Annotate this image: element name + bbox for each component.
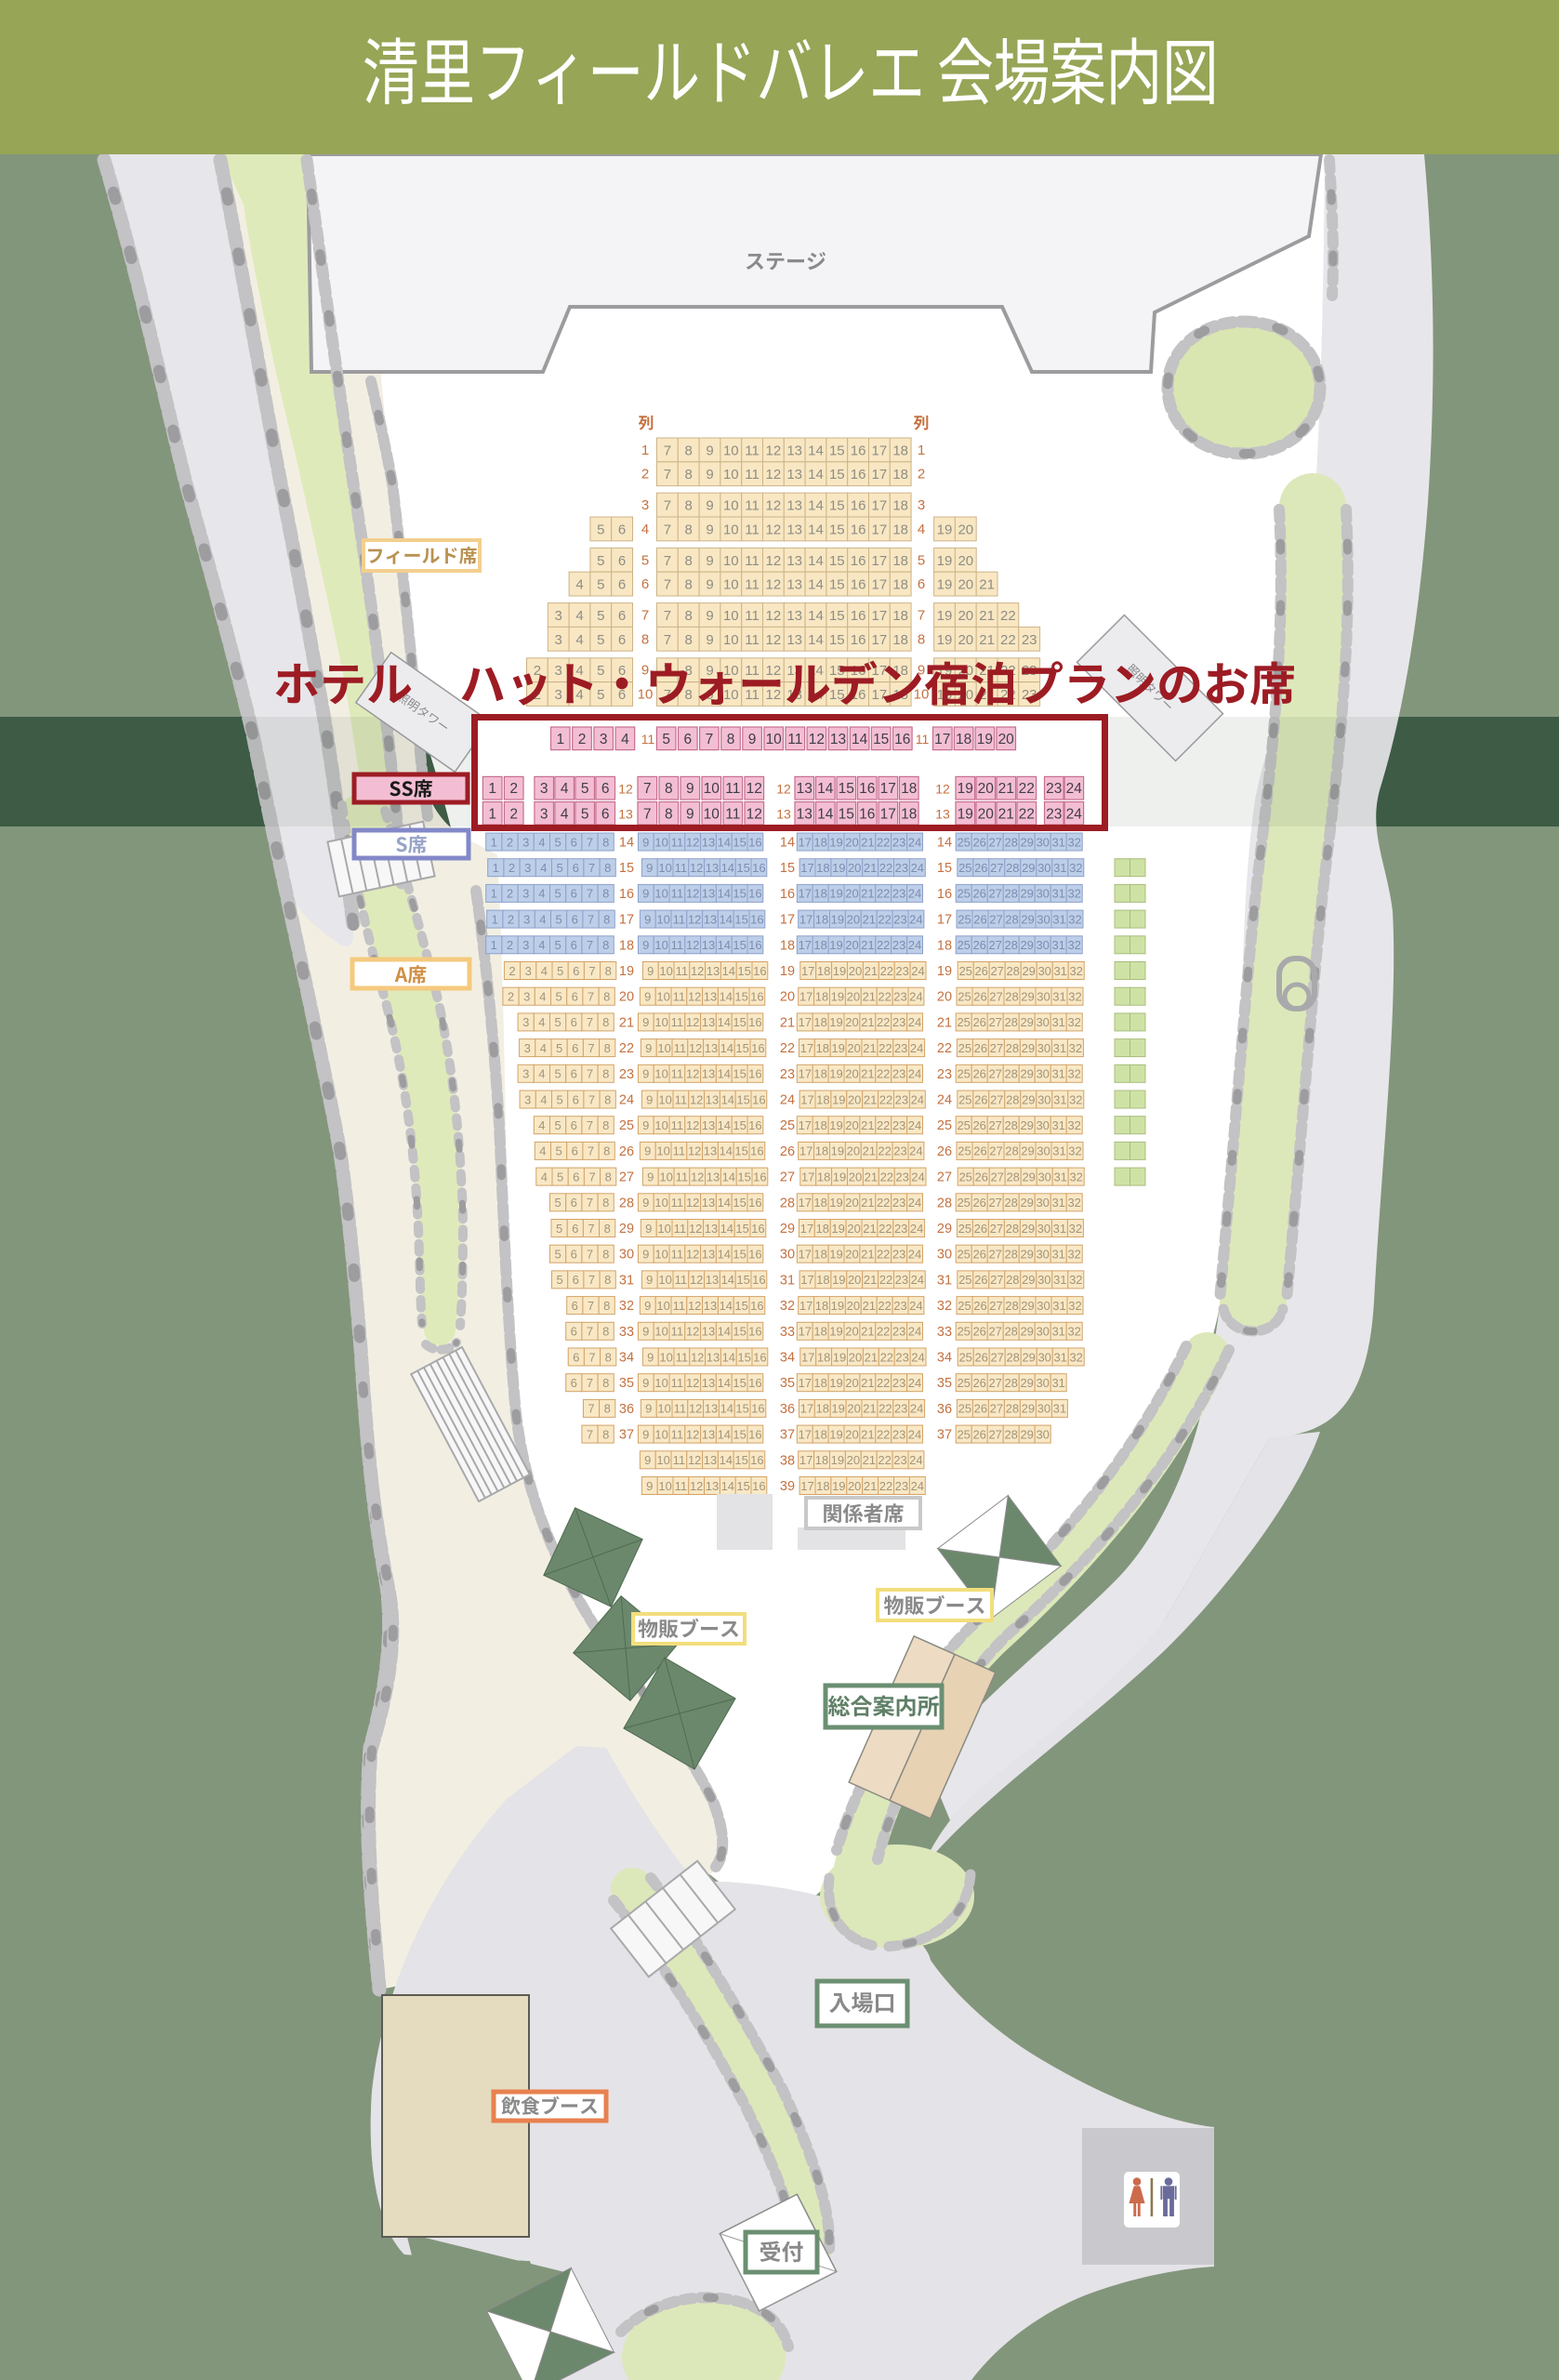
svg-text:26: 26 [974, 1092, 987, 1106]
svg-text:31: 31 [1053, 1041, 1066, 1055]
svg-text:29: 29 [1021, 990, 1034, 1004]
svg-text:27: 27 [988, 887, 1001, 901]
svg-text:23: 23 [895, 1092, 908, 1106]
svg-text:16: 16 [750, 1299, 763, 1313]
svg-text:20: 20 [847, 990, 860, 1004]
svg-text:18: 18 [619, 938, 634, 953]
svg-text:7: 7 [587, 1067, 593, 1081]
svg-text:28: 28 [1006, 964, 1019, 978]
svg-text:25: 25 [958, 1350, 971, 1364]
svg-text:29: 29 [1022, 1170, 1035, 1183]
svg-text:12: 12 [690, 861, 703, 875]
svg-text:23: 23 [1046, 806, 1062, 822]
svg-text:29: 29 [1020, 1376, 1033, 1390]
svg-text:16: 16 [748, 1248, 761, 1262]
svg-text:16: 16 [937, 887, 952, 902]
svg-text:27: 27 [990, 1273, 1003, 1287]
svg-text:32: 32 [1069, 1170, 1082, 1183]
svg-text:9: 9 [686, 781, 694, 797]
svg-text:28: 28 [1004, 835, 1017, 849]
svg-text:13: 13 [702, 1248, 715, 1262]
svg-text:9: 9 [646, 1092, 653, 1106]
svg-text:5: 5 [556, 1041, 562, 1055]
svg-text:13: 13 [786, 498, 802, 514]
svg-text:17: 17 [799, 1325, 812, 1339]
svg-text:7: 7 [641, 608, 649, 624]
svg-text:13: 13 [786, 632, 802, 648]
svg-text:37: 37 [937, 1428, 952, 1443]
svg-text:20: 20 [848, 1479, 861, 1493]
svg-text:16: 16 [748, 1376, 761, 1390]
svg-text:15: 15 [737, 1170, 750, 1183]
svg-text:23: 23 [893, 990, 906, 1004]
svg-text:32: 32 [780, 1299, 795, 1314]
svg-text:7: 7 [588, 861, 595, 875]
svg-text:37: 37 [780, 1428, 795, 1443]
svg-text:21: 21 [863, 1144, 876, 1158]
svg-text:19: 19 [619, 964, 634, 979]
svg-text:21: 21 [937, 1015, 952, 1030]
svg-text:11: 11 [745, 608, 760, 624]
svg-text:31: 31 [1053, 1092, 1066, 1106]
svg-text:12: 12 [746, 781, 762, 797]
svg-text:7: 7 [918, 608, 925, 624]
svg-text:7: 7 [664, 632, 671, 648]
svg-text:12: 12 [689, 1041, 702, 1055]
svg-text:10: 10 [723, 522, 739, 537]
svg-text:13: 13 [704, 912, 717, 926]
svg-text:34: 34 [937, 1351, 952, 1366]
svg-text:22: 22 [937, 1041, 952, 1056]
svg-text:18: 18 [813, 1118, 826, 1132]
svg-text:31: 31 [1053, 1222, 1066, 1236]
svg-text:3: 3 [522, 835, 529, 849]
svg-text:8: 8 [685, 687, 693, 703]
svg-text:17: 17 [800, 1273, 813, 1287]
svg-text:25: 25 [957, 1067, 970, 1081]
svg-text:20: 20 [978, 781, 995, 797]
svg-text:25: 25 [957, 1427, 970, 1441]
svg-text:26: 26 [972, 1427, 985, 1441]
svg-text:16: 16 [851, 632, 866, 648]
svg-text:16: 16 [859, 781, 875, 797]
svg-text:26: 26 [974, 964, 987, 978]
svg-text:11: 11 [674, 1041, 687, 1055]
svg-text:12: 12 [766, 663, 782, 679]
svg-text:19: 19 [833, 1170, 846, 1183]
svg-text:14: 14 [808, 522, 824, 537]
svg-text:21: 21 [780, 1015, 795, 1030]
svg-text:32: 32 [1069, 964, 1082, 978]
svg-text:24: 24 [911, 1170, 924, 1183]
svg-text:26: 26 [973, 1299, 986, 1313]
svg-text:6: 6 [572, 1144, 578, 1158]
svg-text:8: 8 [602, 1015, 609, 1029]
svg-text:22: 22 [878, 1453, 891, 1467]
svg-text:30: 30 [1036, 1067, 1049, 1081]
svg-text:12: 12 [766, 553, 782, 569]
svg-text:33: 33 [937, 1325, 952, 1340]
svg-text:6: 6 [571, 835, 577, 849]
svg-text:5: 5 [597, 608, 604, 624]
svg-text:20: 20 [845, 1325, 858, 1339]
svg-text:12: 12 [766, 522, 782, 537]
svg-text:18: 18 [813, 1196, 826, 1210]
svg-text:32: 32 [1067, 1067, 1080, 1081]
svg-text:36: 36 [937, 1402, 952, 1417]
svg-text:7: 7 [664, 522, 671, 537]
svg-text:11: 11 [676, 1350, 689, 1364]
svg-text:9: 9 [748, 732, 757, 747]
svg-text:26: 26 [974, 1222, 987, 1236]
svg-text:19: 19 [937, 577, 953, 593]
svg-text:23: 23 [892, 1248, 905, 1262]
svg-text:32: 32 [1067, 1248, 1080, 1262]
svg-text:16: 16 [851, 577, 866, 593]
svg-text:32: 32 [619, 1299, 634, 1314]
svg-text:16: 16 [750, 912, 763, 926]
svg-text:24: 24 [909, 1299, 922, 1313]
svg-text:18: 18 [815, 990, 828, 1004]
svg-text:18: 18 [816, 861, 829, 875]
svg-text:8: 8 [604, 1222, 611, 1236]
svg-text:24: 24 [908, 1196, 921, 1210]
svg-text:1: 1 [556, 732, 564, 747]
svg-text:5: 5 [597, 632, 604, 648]
svg-text:1: 1 [493, 861, 499, 875]
svg-text:14: 14 [817, 806, 834, 822]
svg-text:12: 12 [688, 1453, 701, 1467]
svg-text:28: 28 [1004, 1248, 1017, 1262]
svg-text:12: 12 [686, 1325, 699, 1339]
svg-text:8: 8 [602, 1376, 609, 1390]
svg-text:9: 9 [644, 1453, 651, 1467]
svg-text:19: 19 [829, 1067, 842, 1081]
svg-text:4: 4 [541, 964, 548, 978]
svg-text:17: 17 [800, 861, 813, 875]
svg-text:16: 16 [752, 861, 765, 875]
svg-text:13: 13 [786, 553, 802, 569]
svg-text:12: 12 [689, 1222, 702, 1236]
svg-text:8: 8 [685, 608, 693, 624]
svg-text:8: 8 [602, 887, 609, 901]
svg-text:10: 10 [654, 1248, 667, 1262]
svg-text:16: 16 [851, 608, 866, 624]
svg-text:30: 30 [1036, 835, 1049, 849]
svg-text:17: 17 [872, 687, 888, 703]
svg-text:29: 29 [937, 1222, 952, 1236]
svg-text:9: 9 [706, 467, 713, 483]
svg-text:12: 12 [688, 1299, 701, 1313]
svg-text:11: 11 [671, 1325, 684, 1339]
svg-text:11: 11 [671, 938, 684, 952]
svg-text:8: 8 [602, 1325, 609, 1339]
svg-text:16: 16 [750, 990, 763, 1004]
svg-text:11: 11 [673, 990, 686, 1004]
svg-text:9: 9 [642, 835, 649, 849]
svg-text:13: 13 [702, 887, 715, 901]
svg-text:17: 17 [799, 1196, 812, 1210]
svg-text:17: 17 [799, 990, 813, 1004]
svg-text:24: 24 [908, 1325, 921, 1339]
svg-text:6: 6 [641, 576, 649, 592]
svg-text:8: 8 [602, 1427, 609, 1441]
svg-text:19: 19 [829, 938, 842, 952]
svg-text:27: 27 [988, 835, 1001, 849]
svg-text:23: 23 [893, 1453, 906, 1467]
svg-text:28: 28 [1004, 1196, 1017, 1210]
svg-text:14: 14 [718, 938, 731, 952]
svg-text:5: 5 [597, 663, 604, 679]
svg-text:26: 26 [619, 1144, 634, 1159]
svg-text:4: 4 [540, 1092, 547, 1106]
svg-text:31: 31 [1053, 1273, 1066, 1287]
svg-text:29: 29 [1020, 835, 1033, 849]
svg-text:18: 18 [892, 608, 908, 624]
svg-text:10: 10 [656, 1299, 669, 1313]
svg-text:17: 17 [872, 608, 888, 624]
svg-text:26: 26 [972, 1118, 985, 1132]
svg-text:27: 27 [990, 1170, 1003, 1183]
svg-text:14: 14 [720, 912, 733, 926]
svg-text:13: 13 [702, 1067, 715, 1081]
svg-text:26: 26 [974, 1273, 987, 1287]
svg-text:17: 17 [801, 964, 814, 978]
svg-text:19: 19 [829, 1427, 842, 1441]
svg-text:7: 7 [588, 1170, 595, 1183]
svg-text:13: 13 [707, 1350, 720, 1364]
svg-text:14: 14 [721, 1092, 734, 1106]
svg-text:16: 16 [851, 522, 866, 537]
svg-text:21: 21 [998, 781, 1014, 797]
svg-text:22: 22 [619, 1041, 634, 1056]
svg-text:6: 6 [573, 1273, 579, 1287]
svg-text:18: 18 [892, 467, 908, 483]
svg-text:32: 32 [1068, 1299, 1081, 1313]
svg-text:14: 14 [720, 1041, 733, 1055]
svg-text:20: 20 [845, 1118, 858, 1132]
svg-text:28: 28 [1006, 1222, 1019, 1236]
svg-text:22: 22 [878, 912, 891, 926]
svg-text:7: 7 [588, 1273, 595, 1287]
svg-text:29: 29 [1020, 1248, 1033, 1262]
svg-text:8: 8 [665, 806, 673, 822]
svg-text:27: 27 [988, 1067, 1001, 1081]
svg-text:22: 22 [877, 1118, 890, 1132]
svg-text:19: 19 [832, 861, 845, 875]
svg-text:33: 33 [780, 1325, 795, 1340]
svg-text:30: 30 [1036, 887, 1049, 901]
svg-text:11: 11 [671, 1376, 684, 1390]
svg-text:11: 11 [671, 1118, 684, 1132]
svg-text:16: 16 [780, 887, 795, 902]
svg-text:22: 22 [877, 1427, 890, 1441]
svg-text:28: 28 [937, 1196, 952, 1210]
svg-text:18: 18 [815, 912, 828, 926]
svg-text:28: 28 [1006, 1041, 1019, 1055]
svg-text:22: 22 [879, 1479, 892, 1493]
svg-text:21: 21 [979, 577, 995, 593]
svg-text:17: 17 [872, 632, 888, 648]
svg-text:21: 21 [864, 1092, 877, 1106]
svg-text:6: 6 [618, 632, 626, 648]
svg-text:17: 17 [872, 498, 888, 514]
svg-text:10: 10 [658, 1092, 671, 1106]
svg-text:30: 30 [1036, 938, 1049, 952]
svg-text:2: 2 [578, 732, 587, 747]
svg-text:17: 17 [799, 1427, 812, 1441]
svg-text:4: 4 [575, 632, 583, 648]
svg-text:18: 18 [817, 1350, 830, 1364]
svg-text:15: 15 [619, 861, 634, 876]
svg-text:11: 11 [675, 1092, 688, 1106]
svg-text:23: 23 [619, 1067, 634, 1082]
svg-text:12: 12 [686, 1376, 699, 1390]
svg-text:17: 17 [872, 443, 888, 458]
svg-text:15: 15 [839, 806, 854, 822]
svg-text:21: 21 [863, 1402, 876, 1416]
svg-text:6: 6 [618, 687, 626, 703]
svg-text:14: 14 [721, 1273, 734, 1287]
svg-text:20: 20 [847, 1402, 860, 1416]
svg-text:19: 19 [832, 1092, 845, 1106]
svg-text:21: 21 [619, 1015, 634, 1030]
svg-text:7: 7 [706, 732, 714, 747]
svg-text:6: 6 [571, 1067, 577, 1081]
svg-text:10: 10 [723, 443, 739, 458]
svg-text:32: 32 [1067, 938, 1080, 952]
svg-text:14: 14 [808, 577, 824, 593]
svg-text:36: 36 [619, 1402, 634, 1417]
svg-text:1: 1 [488, 781, 496, 797]
svg-text:3: 3 [524, 1041, 531, 1055]
svg-text:6: 6 [571, 1248, 577, 1262]
svg-text:30: 30 [1037, 1144, 1050, 1158]
svg-text:23: 23 [895, 964, 908, 978]
svg-text:30: 30 [1037, 1170, 1050, 1183]
svg-text:10: 10 [723, 467, 739, 483]
svg-text:22: 22 [1019, 781, 1035, 797]
svg-text:6: 6 [571, 1015, 577, 1029]
svg-text:5: 5 [554, 1015, 561, 1029]
svg-text:27: 27 [988, 1196, 1001, 1210]
svg-text:16: 16 [750, 1144, 763, 1158]
svg-text:27: 27 [990, 964, 1003, 978]
svg-text:19: 19 [833, 964, 846, 978]
svg-text:17: 17 [872, 577, 888, 593]
svg-text:27: 27 [990, 1402, 1003, 1416]
svg-text:27: 27 [988, 1427, 1001, 1441]
svg-text:14: 14 [937, 836, 952, 851]
svg-text:27: 27 [989, 912, 1002, 926]
svg-text:10: 10 [656, 990, 669, 1004]
svg-text:12: 12 [766, 467, 782, 483]
svg-text:4: 4 [538, 887, 545, 901]
svg-text:21: 21 [863, 1299, 876, 1313]
svg-text:10: 10 [658, 1479, 671, 1493]
svg-text:22: 22 [879, 1041, 892, 1055]
svg-text:21: 21 [861, 1427, 874, 1441]
svg-text:22: 22 [877, 835, 890, 849]
svg-text:31: 31 [1053, 964, 1066, 978]
svg-text:28: 28 [1006, 1092, 1019, 1106]
svg-text:5: 5 [556, 1222, 562, 1236]
svg-text:13: 13 [707, 1170, 720, 1183]
svg-text:15: 15 [733, 1376, 746, 1390]
svg-text:35: 35 [937, 1376, 952, 1391]
svg-text:29: 29 [1021, 1299, 1034, 1313]
svg-text:16: 16 [748, 1067, 761, 1081]
svg-text:19: 19 [958, 781, 973, 797]
svg-text:22: 22 [877, 1015, 890, 1029]
svg-text:23: 23 [892, 1196, 905, 1210]
svg-text:1: 1 [491, 835, 497, 849]
svg-text:9: 9 [641, 663, 649, 679]
svg-text:14: 14 [718, 835, 731, 849]
svg-text:16: 16 [619, 887, 634, 902]
svg-text:17: 17 [780, 913, 795, 928]
svg-text:16: 16 [752, 1479, 765, 1493]
svg-text:16: 16 [751, 1222, 764, 1236]
svg-text:21: 21 [861, 887, 874, 901]
svg-text:8: 8 [602, 1196, 609, 1210]
svg-text:27: 27 [619, 1170, 634, 1185]
svg-text:31: 31 [1053, 1402, 1066, 1416]
svg-text:14: 14 [718, 1015, 731, 1029]
svg-text:8: 8 [603, 1299, 610, 1313]
svg-text:5: 5 [554, 1118, 561, 1132]
svg-text:19: 19 [937, 522, 953, 537]
svg-text:17: 17 [799, 1067, 812, 1081]
svg-text:20: 20 [845, 887, 858, 901]
svg-text:28: 28 [1005, 1299, 1018, 1313]
svg-text:3: 3 [641, 497, 649, 513]
svg-text:13: 13 [702, 1196, 715, 1210]
svg-text:23: 23 [937, 1067, 952, 1082]
svg-text:28: 28 [619, 1196, 634, 1210]
svg-text:10: 10 [654, 1376, 667, 1390]
svg-text:11: 11 [675, 1479, 688, 1493]
svg-text:29: 29 [1020, 1118, 1033, 1132]
svg-text:4: 4 [538, 1015, 545, 1029]
svg-text:24: 24 [911, 1479, 924, 1493]
svg-text:22: 22 [877, 1067, 890, 1081]
svg-text:32: 32 [1067, 835, 1080, 849]
svg-text:32: 32 [1068, 912, 1081, 926]
svg-text:8: 8 [604, 1402, 611, 1416]
svg-text:7: 7 [587, 835, 593, 849]
svg-text:19: 19 [937, 553, 953, 569]
svg-text:28: 28 [1004, 1067, 1017, 1081]
svg-text:23: 23 [893, 1144, 906, 1158]
svg-text:28: 28 [780, 1196, 795, 1210]
svg-text:9: 9 [646, 1273, 653, 1287]
svg-text:18: 18 [813, 1015, 826, 1029]
svg-text:6: 6 [601, 806, 610, 822]
svg-text:8: 8 [605, 964, 612, 978]
svg-text:31: 31 [780, 1273, 795, 1288]
svg-text:7: 7 [588, 1092, 595, 1106]
svg-text:14: 14 [722, 1170, 735, 1183]
svg-text:6: 6 [573, 964, 579, 978]
svg-text:1: 1 [488, 806, 496, 822]
svg-text:10: 10 [654, 1067, 667, 1081]
svg-text:24: 24 [937, 1093, 952, 1108]
svg-text:2: 2 [508, 990, 514, 1004]
svg-text:2: 2 [509, 861, 515, 875]
svg-text:13: 13 [776, 807, 791, 822]
svg-text:13: 13 [702, 1015, 715, 1029]
